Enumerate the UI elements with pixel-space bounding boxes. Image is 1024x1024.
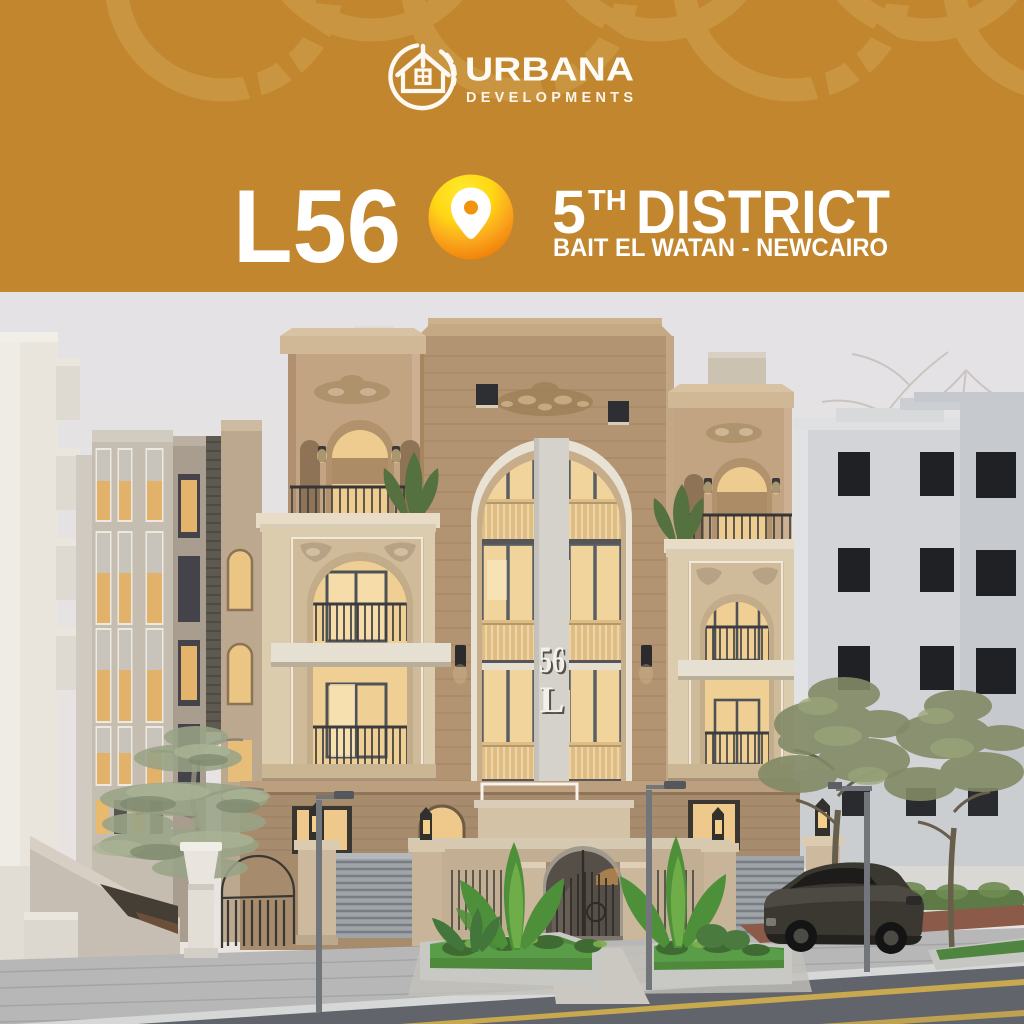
svg-text:TH: TH — [588, 185, 627, 217]
svg-text:L: L — [540, 680, 565, 721]
svg-text:56: 56 — [539, 640, 565, 681]
svg-text:L56: L56 — [233, 169, 401, 285]
svg-text:BAIT EL WATAN - NEWCAIRO: BAIT EL WATAN - NEWCAIRO — [553, 234, 888, 262]
svg-text:URBANA: URBANA — [465, 51, 634, 88]
